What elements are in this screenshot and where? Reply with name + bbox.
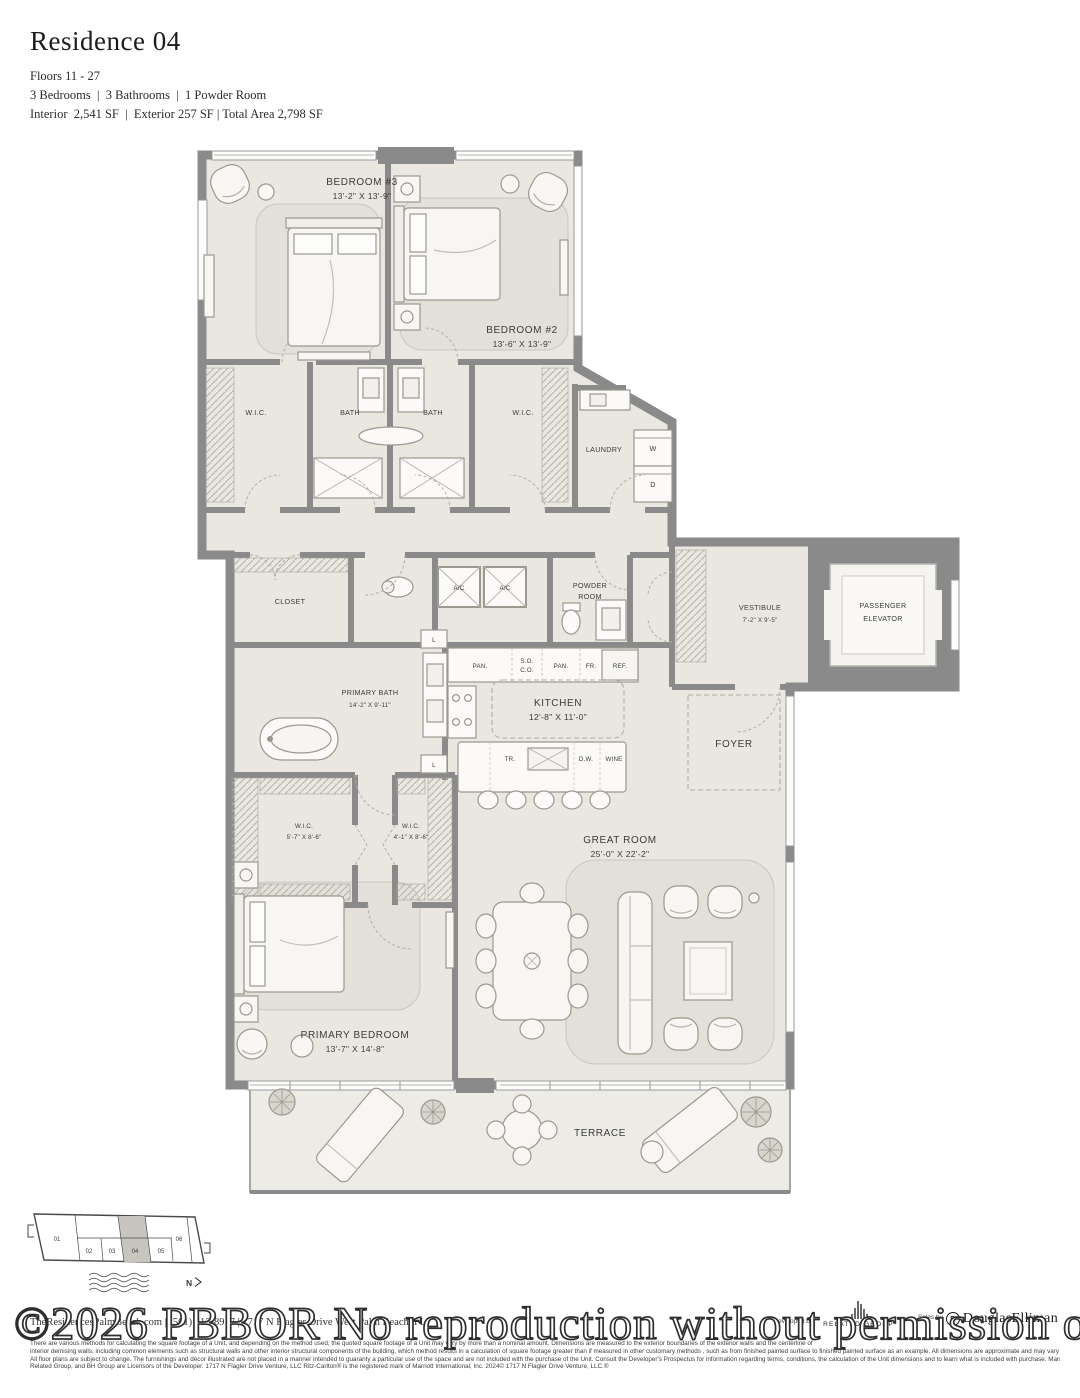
lounge-chair-icon [664,1018,698,1050]
unit-02-label: 02 [86,1249,93,1255]
dishwasher-label: D.W. [579,756,593,763]
toilet-icon [562,603,580,634]
vanity-icon [596,600,626,640]
page-title: Residence 04 [30,26,323,57]
header: Residence 04 Floors 11 - 27 3 Bedrooms |… [30,26,323,124]
great-room-label: GREAT ROOM [583,835,656,846]
great-room-dims: 25'-0" X 22'-2" [591,849,650,859]
linen-label: L [432,637,436,644]
ac-label: A/C [454,585,465,592]
plant-icon [269,1089,295,1115]
laundry-label: LAUNDRY [586,445,622,454]
primary-wic-dims: 5'-7" X 8'-6" [287,834,322,841]
bed-icon [394,206,500,302]
dining-table-icon [493,902,571,1020]
console-icon [560,240,568,295]
terrace-label: TERRACE [574,1128,626,1139]
primary-bedroom-label: PRIMARY BEDROOM [301,1030,410,1041]
nightstand-icon [234,862,258,888]
terrace-side-table-icon [641,1141,663,1163]
foyer-label: FOYER [715,739,752,750]
primary-bedroom-dims: 13'-7" X 14'-8" [326,1044,385,1054]
kitchen-label: KITCHEN [534,698,582,709]
ac-label: A/C [500,585,511,592]
north-arrow-icon: N [186,1278,201,1289]
pantry-label: PAN. [554,663,569,670]
water-waves-icon [89,1273,149,1292]
pantry-label: PAN. [473,663,488,670]
primary-wic-label: W.I.C. [402,823,420,830]
linen-label: L [432,762,436,769]
nightstand-icon [394,176,420,202]
closet-label: CLOSET [275,597,306,606]
mls-watermark: ©2026 PBBOR No reproduction without perm… [14,1294,1080,1356]
primary-wic-label: W.I.C. [295,823,313,830]
washer-label: W [649,444,656,453]
area-line: Interior 2,541 SF | Exterior 257 SF | To… [30,105,323,124]
coffee-table-icon [684,942,732,1000]
plant-icon [758,1138,782,1162]
vestibule-dims: 7'-2" X 9'-5" [743,617,778,624]
north-label: N [186,1278,192,1288]
bath-label: BATH [423,408,443,417]
floors-line: Floors 11 - 27 [30,67,323,86]
nightstand-icon [234,996,258,1022]
kitchen-island [458,742,626,792]
primary-bath-dims: 14'-2" X 9'-11" [349,702,391,709]
tub-icon [359,427,423,445]
lounge-chair-icon [708,1018,742,1050]
primary-bath-label: PRIMARY BATH [342,688,399,697]
wic-label: W.I.C. [245,408,266,417]
lounge-chair-icon [708,886,742,918]
rooms-line: 3 Bedrooms | 3 Bathrooms | 1 Powder Room [30,86,323,105]
vestibule-label: VESTIBULE [739,603,781,612]
elevator-label: PASSENGER [860,601,907,610]
shower-icon [314,458,382,498]
floor-lamp-icon [749,893,759,903]
dryer-label: D [650,480,656,489]
so-label: S.O. [520,658,533,665]
plant-icon [741,1097,771,1127]
legal-line: Related Group, and BH Group are Licensor… [30,1363,1060,1371]
sofa-icon [618,892,652,1054]
unit-05-label: 05 [158,1249,165,1255]
building-keyplan: 01 02 03 04 05 06 N [25,1205,225,1305]
floorplan-sheet: Residence 04 Floors 11 - 27 3 Bedrooms |… [0,0,1080,1398]
shower-icon [400,458,464,498]
wine-label: WINE [606,756,623,763]
co-label: C.O. [520,667,534,674]
legal-line: All floor plans are subject to change. T… [30,1356,1060,1364]
ref-label: REF. [613,663,627,670]
powder-room-label: POWDER [573,581,607,590]
unit-01-label: 01 [54,1237,61,1243]
bath-label: BATH [340,408,360,417]
kitchen-dims: 12'-8" X 11'-0" [529,712,587,722]
bedroom2-dims: 13'-6" X 13'-9" [493,339,552,349]
bed-icon [286,218,382,360]
unit-04-label: 04 [132,1249,139,1255]
elevator-label2: ELEVATOR [863,614,903,623]
unit-03-label: 03 [109,1249,116,1255]
tub-icon [260,718,338,760]
console-icon [204,255,214,317]
console-icon [446,912,454,968]
bed-icon [234,894,344,994]
range-icon [448,686,476,738]
bedroom3-dims: 13'-2" X 13'-9" [333,191,392,201]
toilet-icon [382,577,413,597]
fridge-label: FR. [586,663,597,670]
unit-06-label: 06 [176,1237,183,1243]
residence-meta: Floors 11 - 27 3 Bedrooms | 3 Bathrooms … [30,67,323,124]
bedroom2-label: BEDROOM #2 [486,325,558,336]
wic-label: W.I.C. [512,408,533,417]
side-table-icon [258,184,274,200]
lounge-chair-icon [664,886,698,918]
floorplan-drawing: BEDROOM #3 13'-2" X 13'-9" BEDROOM #2 13… [190,140,970,1200]
ottoman-icon [501,175,519,193]
plant-icon [421,1100,445,1124]
powder-room-label2: ROOM [578,592,602,601]
vanity-icon [423,653,447,737]
trash-label: TR. [505,756,516,763]
primary-wic-dims: 4'-1" X 8'-6" [394,834,429,841]
armchair-icon [237,1029,267,1059]
bedroom3-label: BEDROOM #3 [326,177,398,188]
nightstand-icon [394,304,420,330]
